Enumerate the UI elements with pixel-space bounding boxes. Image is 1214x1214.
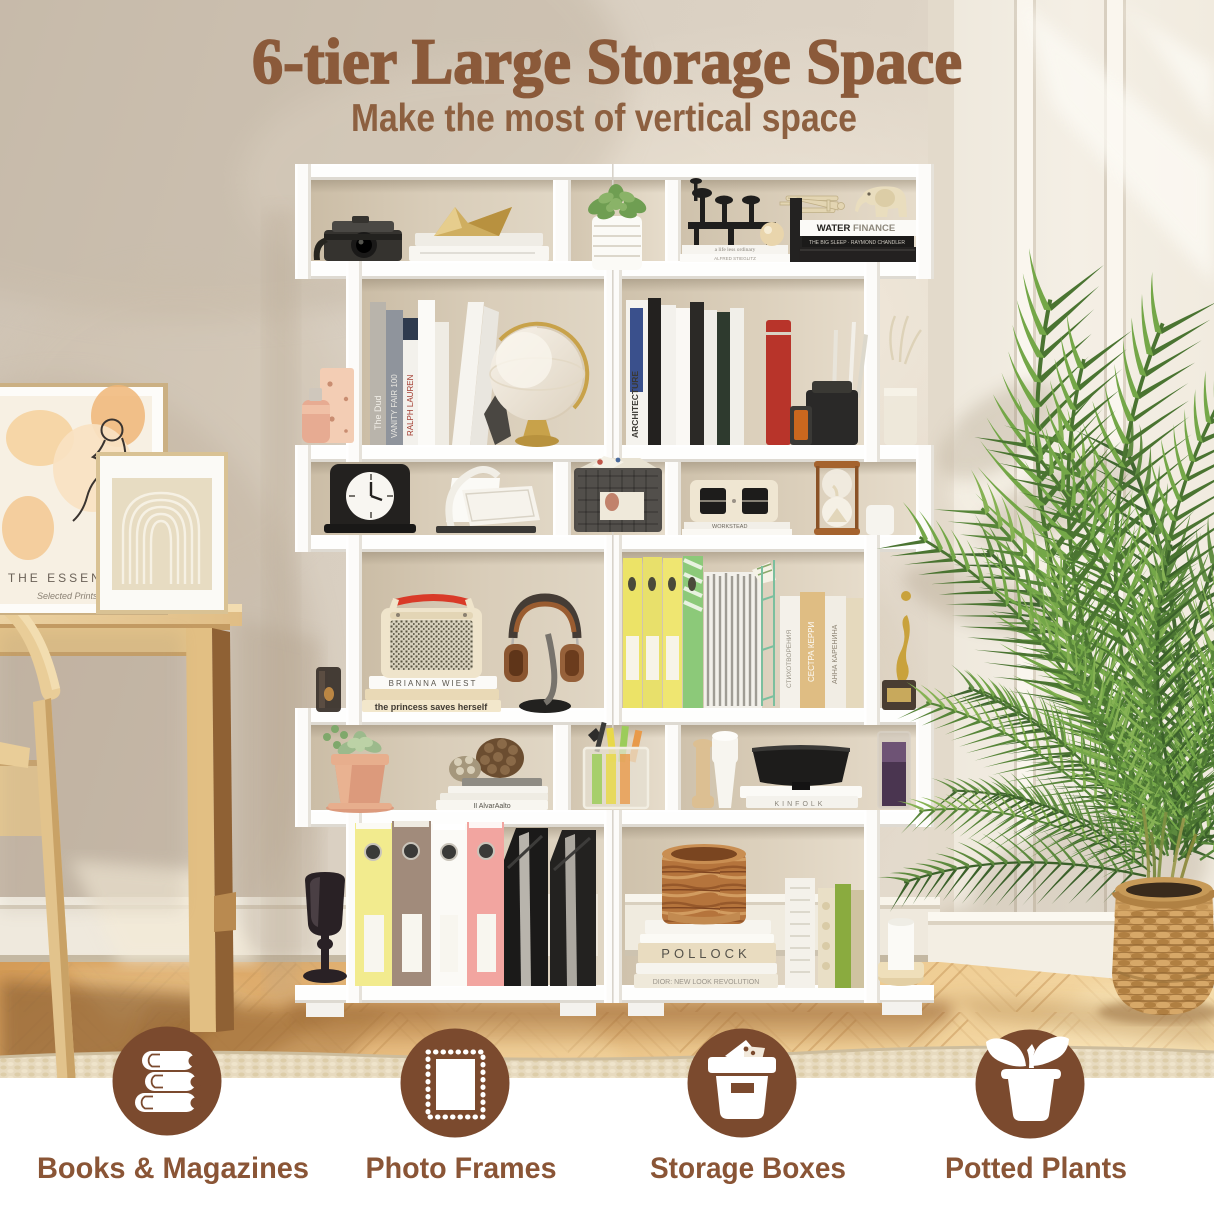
svg-text:RALPH LAUREN: RALPH LAUREN xyxy=(406,374,415,436)
svg-text:WORKSTEAD: WORKSTEAD xyxy=(712,524,747,530)
svg-text:WATER FINANCE: WATER FINANCE xyxy=(817,223,895,234)
svg-text:BRIANNA WIEST: BRIANNA WIEST xyxy=(389,679,478,688)
svg-text:СТИХОТВОРЕНИЯ: СТИХОТВОРЕНИЯ xyxy=(786,630,793,688)
svg-text:Storage Boxes: Storage Boxes xyxy=(650,1152,846,1185)
svg-text:The Dud: The Dud xyxy=(373,395,383,430)
svg-text:POLLOCK: POLLOCK xyxy=(661,946,750,961)
svg-text:ALFRED STIEGLITZ: ALFRED STIEGLITZ xyxy=(714,256,756,261)
svg-text:СЕСТРА КЕРРИ: СЕСТРА КЕРРИ xyxy=(807,621,816,682)
svg-text:DIOR: NEW LOOK REVOLUTION: DIOR: NEW LOOK REVOLUTION xyxy=(653,979,760,986)
svg-text:VANITY FAIR 100: VANITY FAIR 100 xyxy=(390,374,399,438)
svg-text:Photo Frames: Photo Frames xyxy=(366,1152,557,1185)
svg-text:Potted Plants: Potted Plants xyxy=(945,1152,1127,1185)
svg-text:6-tier Large Storage Space: 6-tier Large Storage Space xyxy=(252,26,962,98)
svg-text:the princess saves herself: the princess saves herself xyxy=(375,702,489,712)
svg-text:KINFOLK: KINFOLK xyxy=(775,801,826,808)
svg-text:THE BIG SLEEP · RAYMOND CHANDL: THE BIG SLEEP · RAYMOND CHANDLER xyxy=(809,240,905,246)
svg-text:АННА КАРЕНИНА: АННА КАРЕНИНА xyxy=(832,624,839,684)
svg-text:ARCHITECTURE: ARCHITECTURE xyxy=(630,371,640,438)
svg-text:Books & Magazines: Books & Magazines xyxy=(37,1152,309,1185)
svg-text:II AlvarAalto: II AlvarAalto xyxy=(473,803,510,810)
svg-text:Make the most of vertical spac: Make the most of vertical space xyxy=(351,97,857,140)
svg-text:a life less ordinary: a life less ordinary xyxy=(715,246,756,253)
